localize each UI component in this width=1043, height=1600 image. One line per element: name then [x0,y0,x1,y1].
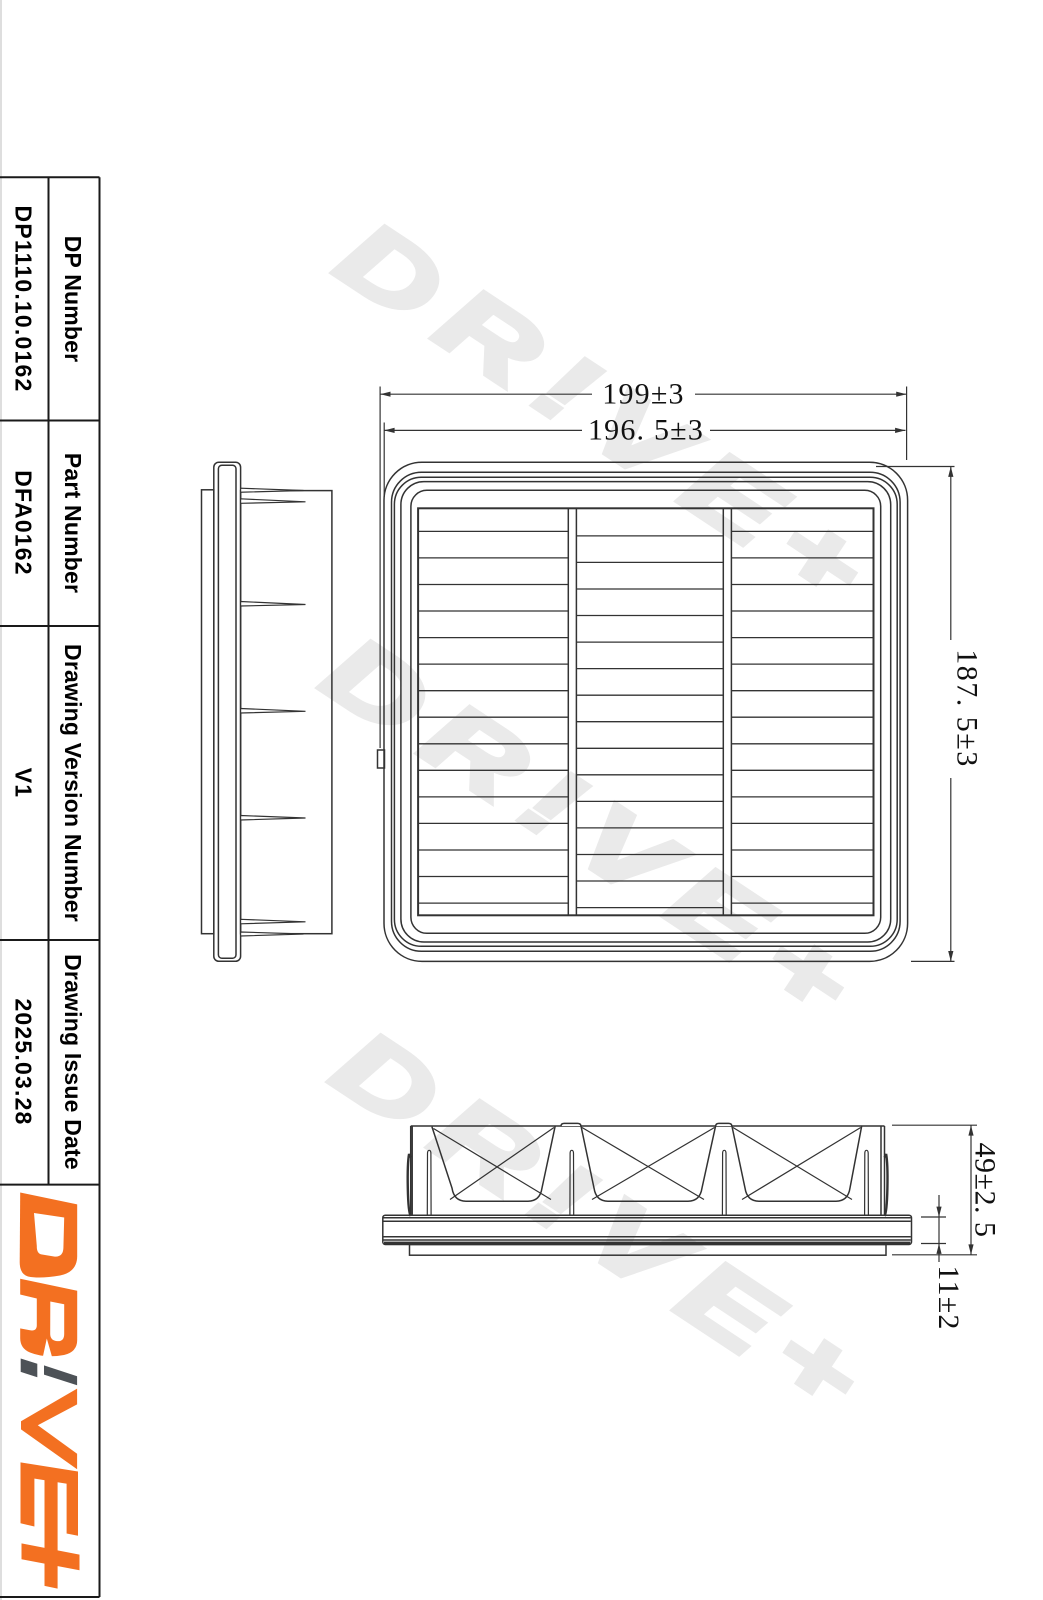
svg-text:DR!VE+: DR!VE+ [315,1008,896,1444]
svg-text:187. 5±3: 187. 5±3 [951,649,984,767]
svg-text:2025.03.28: 2025.03.28 [11,998,37,1125]
svg-text:199±3: 199±3 [602,378,684,411]
svg-text:DFA0162: DFA0162 [11,470,37,576]
svg-text:V1: V1 [11,768,37,799]
svg-text:Drawing Issue Date: Drawing Issue Date [60,954,86,1170]
svg-text:DR!VE+: DR!VE+ [305,614,886,1050]
svg-text:Part Number: Part Number [60,453,86,593]
svg-text:DP Number: DP Number [60,236,86,363]
svg-text:DP1110.10.0162: DP1110.10.0162 [11,206,37,393]
svg-text:49±2. 5: 49±2. 5 [969,1143,1002,1238]
svg-text:11±2: 11±2 [932,1265,965,1330]
svg-text:196. 5±3: 196. 5±3 [588,414,704,447]
svg-text:Drawing Version Number: Drawing Version Number [60,644,86,922]
